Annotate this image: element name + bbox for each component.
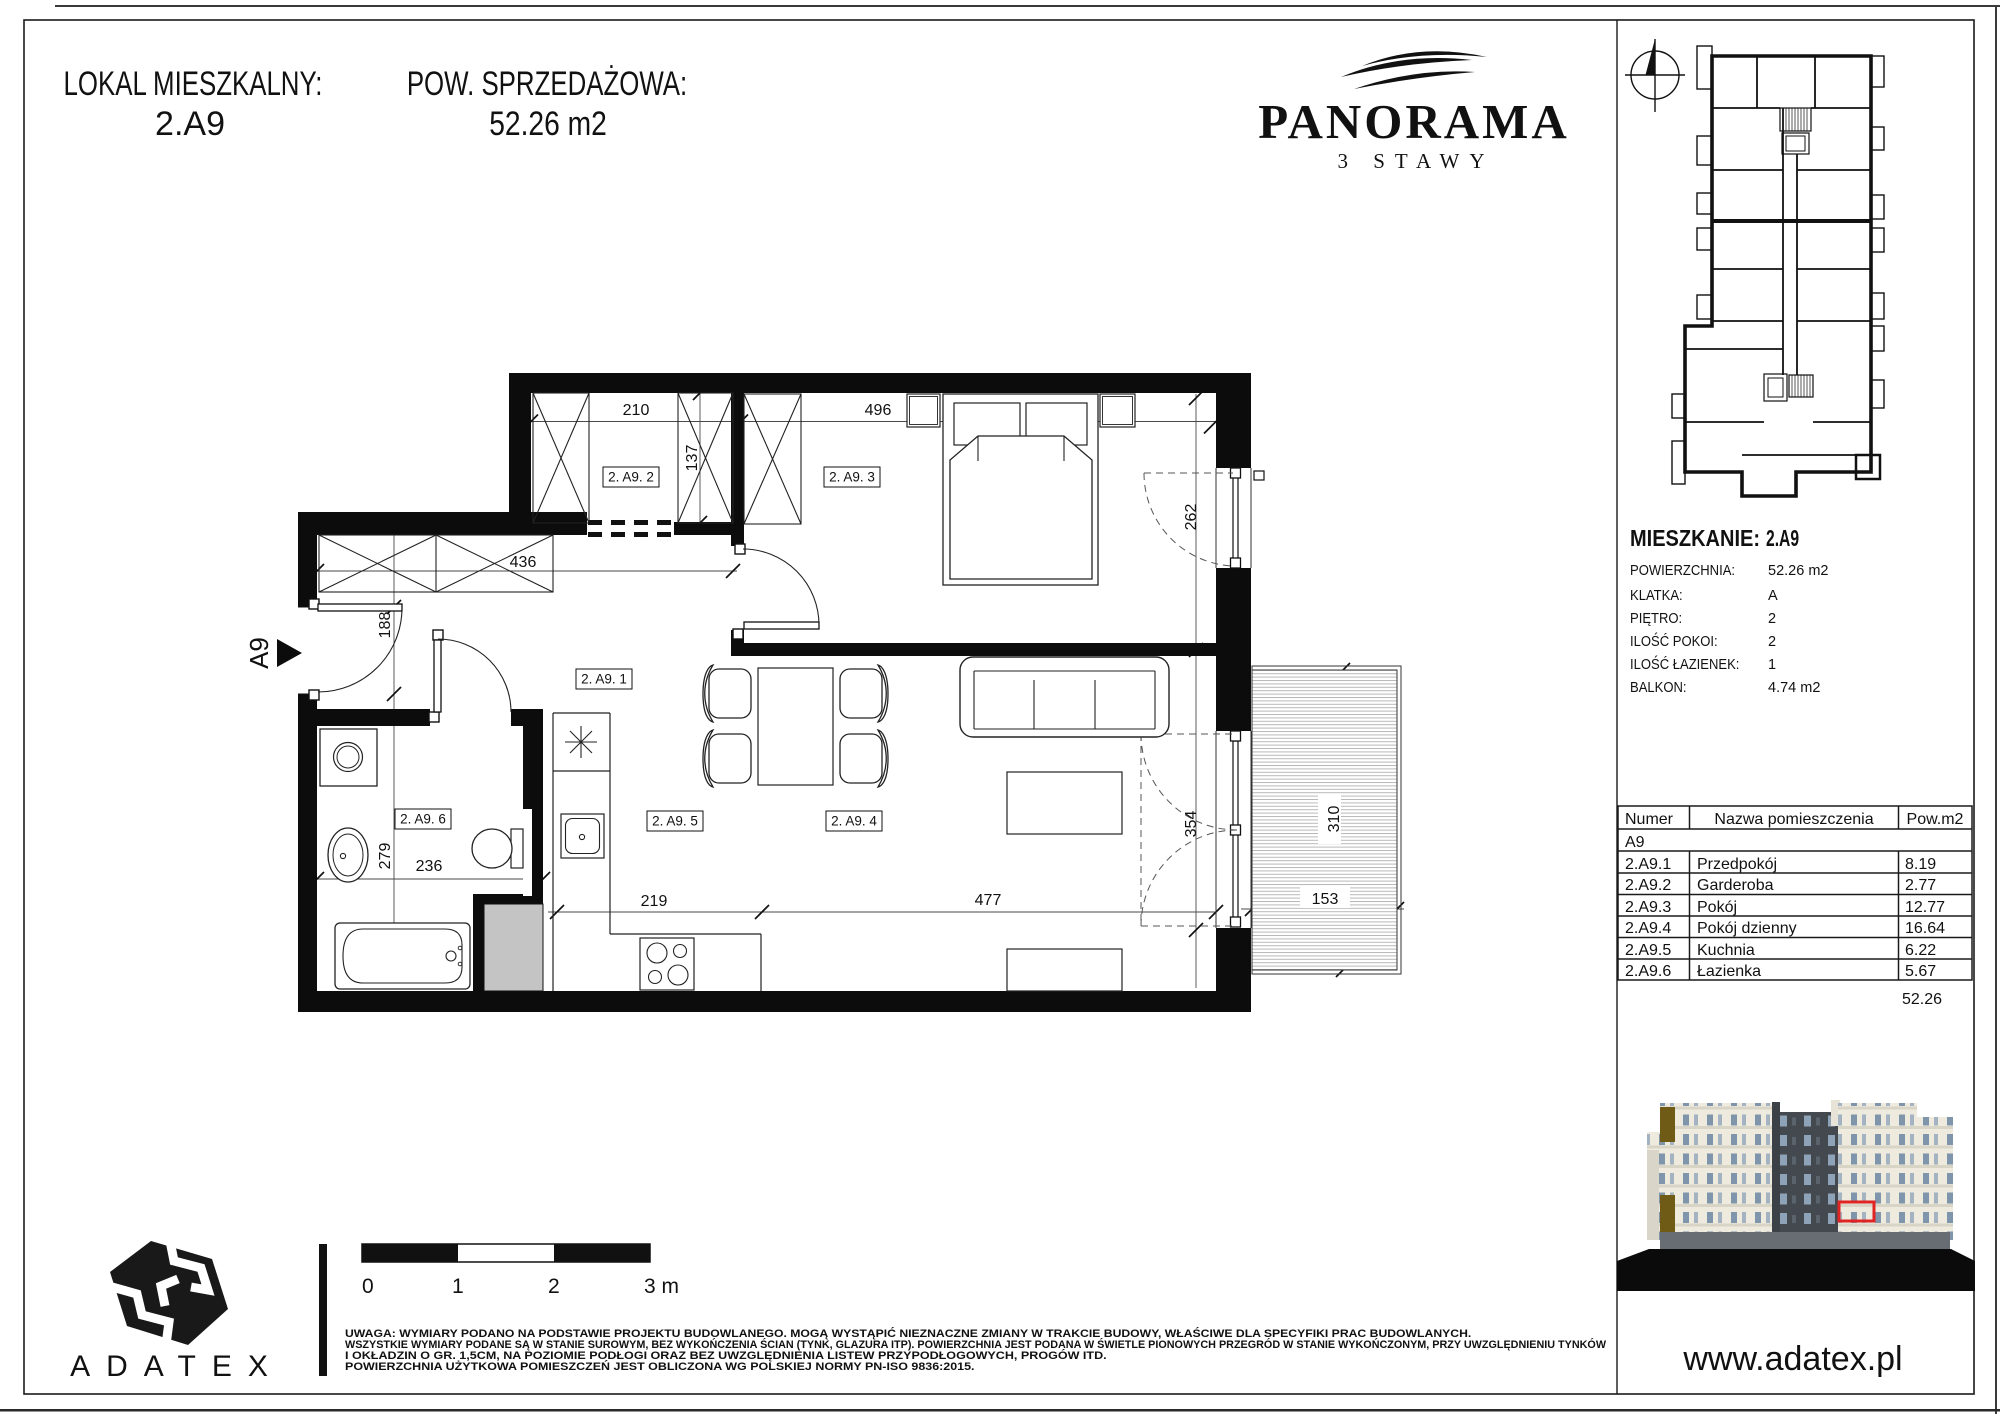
svg-text:5.67: 5.67 (1905, 963, 1936, 980)
svg-text:477: 477 (975, 892, 1002, 909)
svg-text:262: 262 (1183, 504, 1200, 531)
svg-text:1: 1 (452, 1275, 464, 1298)
svg-text:Łazienka: Łazienka (1697, 963, 1761, 980)
svg-text:2.A9.2: 2.A9.2 (1625, 877, 1671, 894)
svg-text:2. A9. 4: 2. A9. 4 (831, 814, 877, 829)
svg-text:BALKON:: BALKON: (1630, 679, 1687, 695)
svg-text:Pokój dzienny: Pokój dzienny (1697, 920, 1797, 937)
svg-text:2.A9.6: 2.A9.6 (1625, 963, 1671, 980)
svg-text:153: 153 (1312, 891, 1339, 908)
svg-text:LOKAL MIESZKALNY:: LOKAL MIESZKALNY: (64, 66, 323, 103)
svg-text:www.adatex.pl: www.adatex.pl (1682, 1340, 1902, 1378)
svg-text:2: 2 (548, 1275, 560, 1298)
svg-text:2. A9. 3: 2. A9. 3 (829, 470, 875, 485)
svg-text:2. A9. 5: 2. A9. 5 (652, 814, 698, 829)
svg-text:310: 310 (1326, 806, 1343, 833)
svg-text:KLATKA:: KLATKA: (1630, 587, 1683, 603)
svg-text:A9: A9 (1625, 834, 1645, 851)
svg-text:436: 436 (510, 554, 537, 571)
svg-text:2: 2 (1768, 634, 1776, 650)
svg-text:354: 354 (1183, 811, 1200, 838)
svg-text:Numer: Numer (1625, 811, 1674, 828)
svg-text:188: 188 (377, 612, 394, 639)
svg-text:ILOŚĆ ŁAZIENEK:: ILOŚĆ ŁAZIENEK: (1630, 654, 1739, 672)
svg-text:ADATEX: ADATEX (70, 1350, 284, 1383)
svg-text:4.74 m2: 4.74 m2 (1768, 680, 1820, 696)
svg-text:6.22: 6.22 (1905, 942, 1936, 959)
svg-text:279: 279 (377, 843, 394, 870)
svg-text:MIESZKANIE:: MIESZKANIE: (1630, 525, 1760, 552)
svg-text:Przedpokój: Przedpokój (1697, 856, 1777, 873)
svg-text:1: 1 (1768, 657, 1776, 673)
svg-text:52.26: 52.26 (1902, 991, 1942, 1008)
svg-text:3 m: 3 m (644, 1275, 679, 1298)
svg-text:Nazwa pomieszczenia: Nazwa pomieszczenia (1714, 811, 1873, 828)
svg-text:2.A9.4: 2.A9.4 (1625, 920, 1671, 937)
svg-text:496: 496 (865, 402, 892, 419)
svg-text:2.A9.3: 2.A9.3 (1625, 899, 1671, 916)
svg-text:2. A9. 6: 2. A9. 6 (400, 812, 446, 827)
svg-text:2.A9.5: 2.A9.5 (1625, 942, 1671, 959)
svg-text:210: 210 (623, 402, 650, 419)
svg-text:ILOŚĆ POKOI:: ILOŚĆ POKOI: (1630, 631, 1718, 649)
svg-text:2.A9.1: 2.A9.1 (1625, 856, 1671, 873)
svg-text:2. A9. 1: 2. A9. 1 (581, 672, 627, 687)
svg-text:8.19: 8.19 (1905, 856, 1936, 873)
svg-text:A: A (1768, 588, 1778, 604)
svg-text:2.A9: 2.A9 (1766, 526, 1799, 552)
svg-text:Kuchnia: Kuchnia (1697, 942, 1755, 959)
svg-text:PANORAMA: PANORAMA (1258, 94, 1570, 149)
svg-text:52.26 m2: 52.26 m2 (1768, 563, 1828, 579)
svg-text:12.77: 12.77 (1905, 899, 1945, 916)
svg-text:A9: A9 (244, 637, 274, 669)
svg-text:Pow.m2: Pow.m2 (1907, 811, 1964, 828)
svg-text:3 STAWY: 3 STAWY (1337, 149, 1494, 173)
svg-text:PIĘTRO:: PIĘTRO: (1630, 610, 1682, 626)
svg-text:2: 2 (1768, 611, 1776, 627)
svg-text:POWIERZCHNIA:: POWIERZCHNIA: (1630, 562, 1735, 578)
svg-text:2. A9. 2: 2. A9. 2 (608, 470, 654, 485)
svg-text:52.26 m2: 52.26 m2 (489, 105, 607, 143)
svg-text:219: 219 (641, 893, 668, 910)
svg-text:236: 236 (416, 858, 443, 875)
svg-text:POW. SPRZEDAŻOWA:: POW. SPRZEDAŻOWA: (407, 66, 687, 103)
svg-text:Pokój: Pokój (1697, 899, 1737, 916)
svg-text:16.64: 16.64 (1905, 920, 1945, 937)
svg-text:0: 0 (362, 1275, 374, 1298)
svg-text:2.77: 2.77 (1905, 877, 1936, 894)
svg-text:2.A9: 2.A9 (155, 105, 225, 143)
svg-text:Garderoba: Garderoba (1697, 877, 1774, 894)
svg-text:POWIERZCHNIA UŻYTKOWA POMIESZC: POWIERZCHNIA UŻYTKOWA POMIESZCZEŃ JEST O… (345, 1361, 974, 1373)
svg-text:137: 137 (684, 445, 701, 472)
